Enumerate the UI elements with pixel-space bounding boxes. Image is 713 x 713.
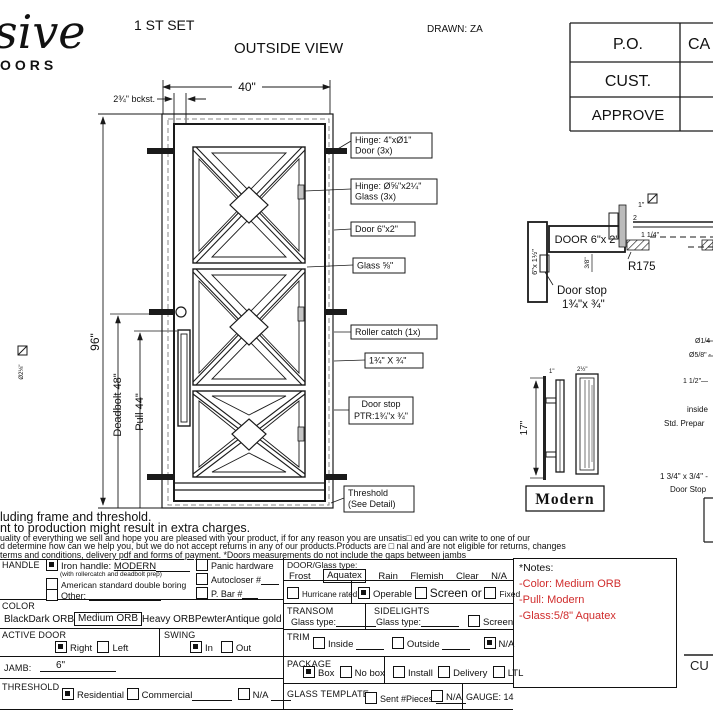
drawn-by: DRAWN: ZA <box>427 24 483 35</box>
svg-text:Door stop: Door stop <box>361 399 400 409</box>
svg-text:1¾" X ¾": 1¾" X ¾" <box>369 356 406 366</box>
svg-text:1¾"x ¾": 1¾"x ¾" <box>562 299 605 311</box>
edge-labels: Ø1/4 Ø5/8" - 1 1/2"— inside Std. Prepar … <box>660 338 713 542</box>
po-value: CA <box>688 36 711 53</box>
package-delivery-cell: Install Delivery LTL <box>385 657 513 684</box>
note-glass: -Glass:5/8" Aquatex <box>519 610 676 622</box>
checkbox-commercial[interactable] <box>127 688 139 700</box>
pull-handle <box>178 330 190 426</box>
jamb-value[interactable]: 6" <box>40 660 116 672</box>
color-option-antique-gold[interactable]: Antique gold <box>226 614 282 625</box>
iron-handle-sub: (with rollercatch and deadbolt prep) <box>60 571 162 578</box>
svg-text:3/8": 3/8" <box>584 257 591 269</box>
hurricane-cell: Hurricane rated <box>283 581 352 604</box>
package-section: PACKAGE Box No box <box>283 657 385 684</box>
svg-text:1 3/4" x 3/4" -: 1 3/4" x 3/4" - <box>660 472 708 481</box>
note-pull: -Pull: Modern <box>519 594 676 606</box>
handle-section: HANDLE Iron handle: MODERN (with rollerc… <box>0 558 283 600</box>
residential-label: Residential <box>77 690 124 701</box>
checkbox-trim-inside[interactable] <box>313 637 325 649</box>
svg-text:Threshold: Threshold <box>348 488 388 498</box>
svg-text:DOOR 6"x 2": DOOR 6"x 2" <box>555 234 620 246</box>
checkbox-box[interactable] <box>303 666 315 678</box>
cust-label: CUST. <box>605 73 651 90</box>
checkbox-sidelight-screen[interactable] <box>468 615 480 627</box>
svg-text:Hinge: 4"xØ1": Hinge: 4"xØ1" <box>355 135 411 145</box>
signature-line: CU <box>684 654 713 673</box>
color-option-medium-orb-selected[interactable]: Medium ORB <box>74 612 142 626</box>
doorstop-profile-partial <box>704 498 713 542</box>
signature-label: CU <box>690 658 713 673</box>
box-label: Box <box>318 668 334 679</box>
notes-box: *Notes: -Color: Medium ORB -Pull: Modern… <box>513 558 677 688</box>
door-glass-section: DOOR/Glass type: Frost Aquatex Rain Flem… <box>283 559 513 581</box>
hurricane-label: Hurricane rated <box>302 590 357 599</box>
sent-pieces-label: Sent #Pieces: <box>380 694 436 704</box>
checkbox-active-left[interactable] <box>97 641 109 653</box>
handle-detail: 17" 1" 2½" Modern <box>519 366 604 511</box>
autocloser-label: Autocloser # <box>211 575 261 585</box>
svg-text:1 1/4": 1 1/4" <box>641 232 660 239</box>
active-left-label: Left <box>112 643 128 654</box>
svg-text:(See Detail): (See Detail) <box>348 499 396 509</box>
svg-text:2¾" bckst.: 2¾" bckst. <box>113 94 155 104</box>
checkbox-threshold-na[interactable] <box>238 688 250 700</box>
approval-table: P.O. CA CUST. APPROVE <box>570 23 713 131</box>
technical-drawing: sive OORS 1 ST SET OUTSIDE VIEW DRAWN: Z… <box>0 0 713 558</box>
active-right-label: Right <box>70 643 92 654</box>
checkbox-template-na[interactable] <box>431 690 443 702</box>
handle-style-name: Modern <box>535 491 594 508</box>
svg-text:Door 6"x2": Door 6"x2" <box>355 224 398 234</box>
logo-doors: OORS <box>0 57 57 73</box>
checkbox-autocloser[interactable] <box>196 573 208 585</box>
trim-section: TRIM Inside Outside N/A <box>283 630 513 657</box>
no-box-label: No box <box>355 668 385 679</box>
glass-option-rain[interactable]: Rain <box>378 571 398 582</box>
operable-cell: Operable Screen or Fixed <box>352 581 513 604</box>
glass-option-na[interactable]: N/A <box>491 571 507 582</box>
svg-text:Hinge: Ø⅝"x2¼": Hinge: Ø⅝"x2¼" <box>355 181 421 191</box>
checkbox-iron-handle[interactable] <box>46 559 58 571</box>
order-form: HANDLE Iron handle: MODERN (with rollerc… <box>0 558 713 712</box>
svg-text:Deadbolt 48": Deadbolt 48" <box>112 373 124 436</box>
set-label: 1 ST SET <box>134 17 195 33</box>
color-option-heavy-orb[interactable]: Heavy ORB <box>142 614 195 625</box>
glass-option-clear[interactable]: Clear <box>456 571 479 582</box>
color-label: COLOR <box>2 601 35 611</box>
pbar-label: P. Bar # <box>211 589 242 599</box>
swing-out-label: Out <box>236 643 251 654</box>
color-option-dark-orb[interactable]: Dark ORB <box>28 614 74 625</box>
color-option-black[interactable]: Black <box>4 614 28 625</box>
svg-text:Glass ⅝": Glass ⅝" <box>357 261 393 271</box>
trim-inside-label: Inside <box>328 639 353 650</box>
checkbox-delivery[interactable] <box>438 666 450 678</box>
checkbox-screen[interactable] <box>415 587 427 599</box>
glass-option-flemish[interactable]: Flemish <box>410 571 443 582</box>
gauge-cell: GAUGE: 14 <box>462 684 513 710</box>
svg-text:Door stop: Door stop <box>557 285 607 297</box>
checkbox-operable[interactable] <box>358 587 370 599</box>
svg-text:Roller catch (1x): Roller catch (1x) <box>355 327 421 337</box>
checkbox-swing-in[interactable] <box>190 641 202 653</box>
jamb-section-detail: 6"x 1½" DOOR 6"x 2" Door stop 1¾"x ¾" 3/… <box>528 194 713 311</box>
glass-option-frost[interactable]: Frost <box>289 571 311 582</box>
checkbox-trim-na[interactable] <box>484 637 496 649</box>
transom-glass-type: Glass type: <box>291 617 336 627</box>
checkbox-residential[interactable] <box>62 688 74 700</box>
glass-template-section: GLASS TEMPLATE Sent #Pieces: N/A <box>283 684 462 710</box>
svg-text:Pull 44": Pull 44" <box>134 393 146 431</box>
svg-text:2: 2 <box>633 215 637 222</box>
color-section: COLOR Black Dark ORB Medium ORB Heavy OR… <box>0 600 283 629</box>
svg-text:96": 96" <box>88 333 102 351</box>
svg-text:R175: R175 <box>628 261 656 273</box>
checkbox-ltl[interactable] <box>493 666 505 678</box>
svg-text:Ø2⅛": Ø2⅛" <box>19 364 25 379</box>
bore-symbol: Ø2⅛" <box>18 346 27 380</box>
checkbox-trim-outside[interactable] <box>392 637 404 649</box>
threshold-section: THRESHOLD Residential Commercial N/A <box>0 679 283 710</box>
gauge-label: GAUGE: 14 <box>466 692 514 702</box>
drawing-sheet: sive OORS 1 ST SET OUTSIDE VIEW DRAWN: Z… <box>0 0 713 713</box>
logo-script: sive <box>0 5 86 59</box>
dim-width-40: 40" <box>163 80 330 114</box>
svg-text:40": 40" <box>238 80 256 94</box>
active-door-section: ACTIVE DOOR Right Left <box>0 629 160 657</box>
svg-text:PTR:1¾"x ¾": PTR:1¾"x ¾" <box>354 411 408 421</box>
svg-text:Std. Prepar: Std. Prepar <box>664 419 705 428</box>
checkbox-sent-pieces[interactable] <box>365 692 377 704</box>
svg-text:Ø1/4: Ø1/4 <box>695 338 710 345</box>
swing-section: SWING In Out <box>160 629 283 657</box>
note-color: -Color: Medium ORB <box>519 578 676 590</box>
dim-pull: Pull 44" <box>134 331 177 508</box>
svg-text:Glass (3x): Glass (3x) <box>355 192 396 202</box>
trim-outside-label: Outside <box>407 639 440 650</box>
svg-text:Door Stop: Door Stop <box>670 485 707 494</box>
svg-text:2½": 2½" <box>577 366 587 373</box>
checkbox-fixed[interactable] <box>484 587 496 599</box>
sidelight-screen-label: Screen <box>483 617 513 628</box>
checkbox-panic-hardware[interactable] <box>196 559 208 571</box>
svg-text:1": 1" <box>549 369 554 375</box>
sidelights-section: SIDELIGHTS Glass type: Screen <box>366 604 513 630</box>
operable-label: Operable <box>373 589 412 600</box>
transom-section: TRANSOM Glass type: <box>283 604 366 630</box>
view-title: OUTSIDE VIEW <box>234 40 344 57</box>
checkbox-swing-out[interactable] <box>221 641 233 653</box>
svg-text:6"x 1½": 6"x 1½" <box>530 249 539 275</box>
commercial-label: Commercial <box>142 690 193 701</box>
swing-in-label: In <box>205 643 213 654</box>
svg-text:17": 17" <box>519 420 530 435</box>
approve-label: APPROVE <box>592 107 665 124</box>
door-x-panel-bottom <box>193 391 305 477</box>
threshold-na-label: N/A <box>253 690 269 701</box>
color-option-pewter[interactable]: Pewter <box>195 614 226 625</box>
svg-text:1": 1" <box>638 202 645 209</box>
trim-na-label: N/A <box>499 639 515 650</box>
checkbox-pbar[interactable] <box>196 587 208 599</box>
delivery-label: Delivery <box>453 668 487 679</box>
po-label: P.O. <box>613 36 643 53</box>
install-label: Install <box>408 668 433 679</box>
checkbox-active-right[interactable] <box>55 641 67 653</box>
checkbox-no-box[interactable] <box>340 666 352 678</box>
screen-or-label: Screen or <box>430 586 482 600</box>
jamb-section: JAMB: 6" <box>0 657 283 679</box>
notes-title: *Notes: <box>519 562 676 574</box>
svg-text:Ø5/8" -: Ø5/8" - <box>689 352 712 359</box>
handle-label: HANDLE <box>2 560 40 570</box>
template-na-label: N/A <box>446 692 462 703</box>
svg-text:inside: inside <box>687 405 708 414</box>
checkbox-hurricane[interactable] <box>287 587 299 599</box>
disclaimer: luding frame and threshold. nt to produc… <box>0 512 505 559</box>
svg-text:1 1/2"—: 1 1/2"— <box>683 378 708 385</box>
panic-label: Panic hardware <box>211 561 274 571</box>
checkbox-install[interactable] <box>393 666 405 678</box>
svg-text:Door (3x): Door (3x) <box>355 146 393 156</box>
sidelights-glass-type: Glass type: <box>376 617 421 627</box>
